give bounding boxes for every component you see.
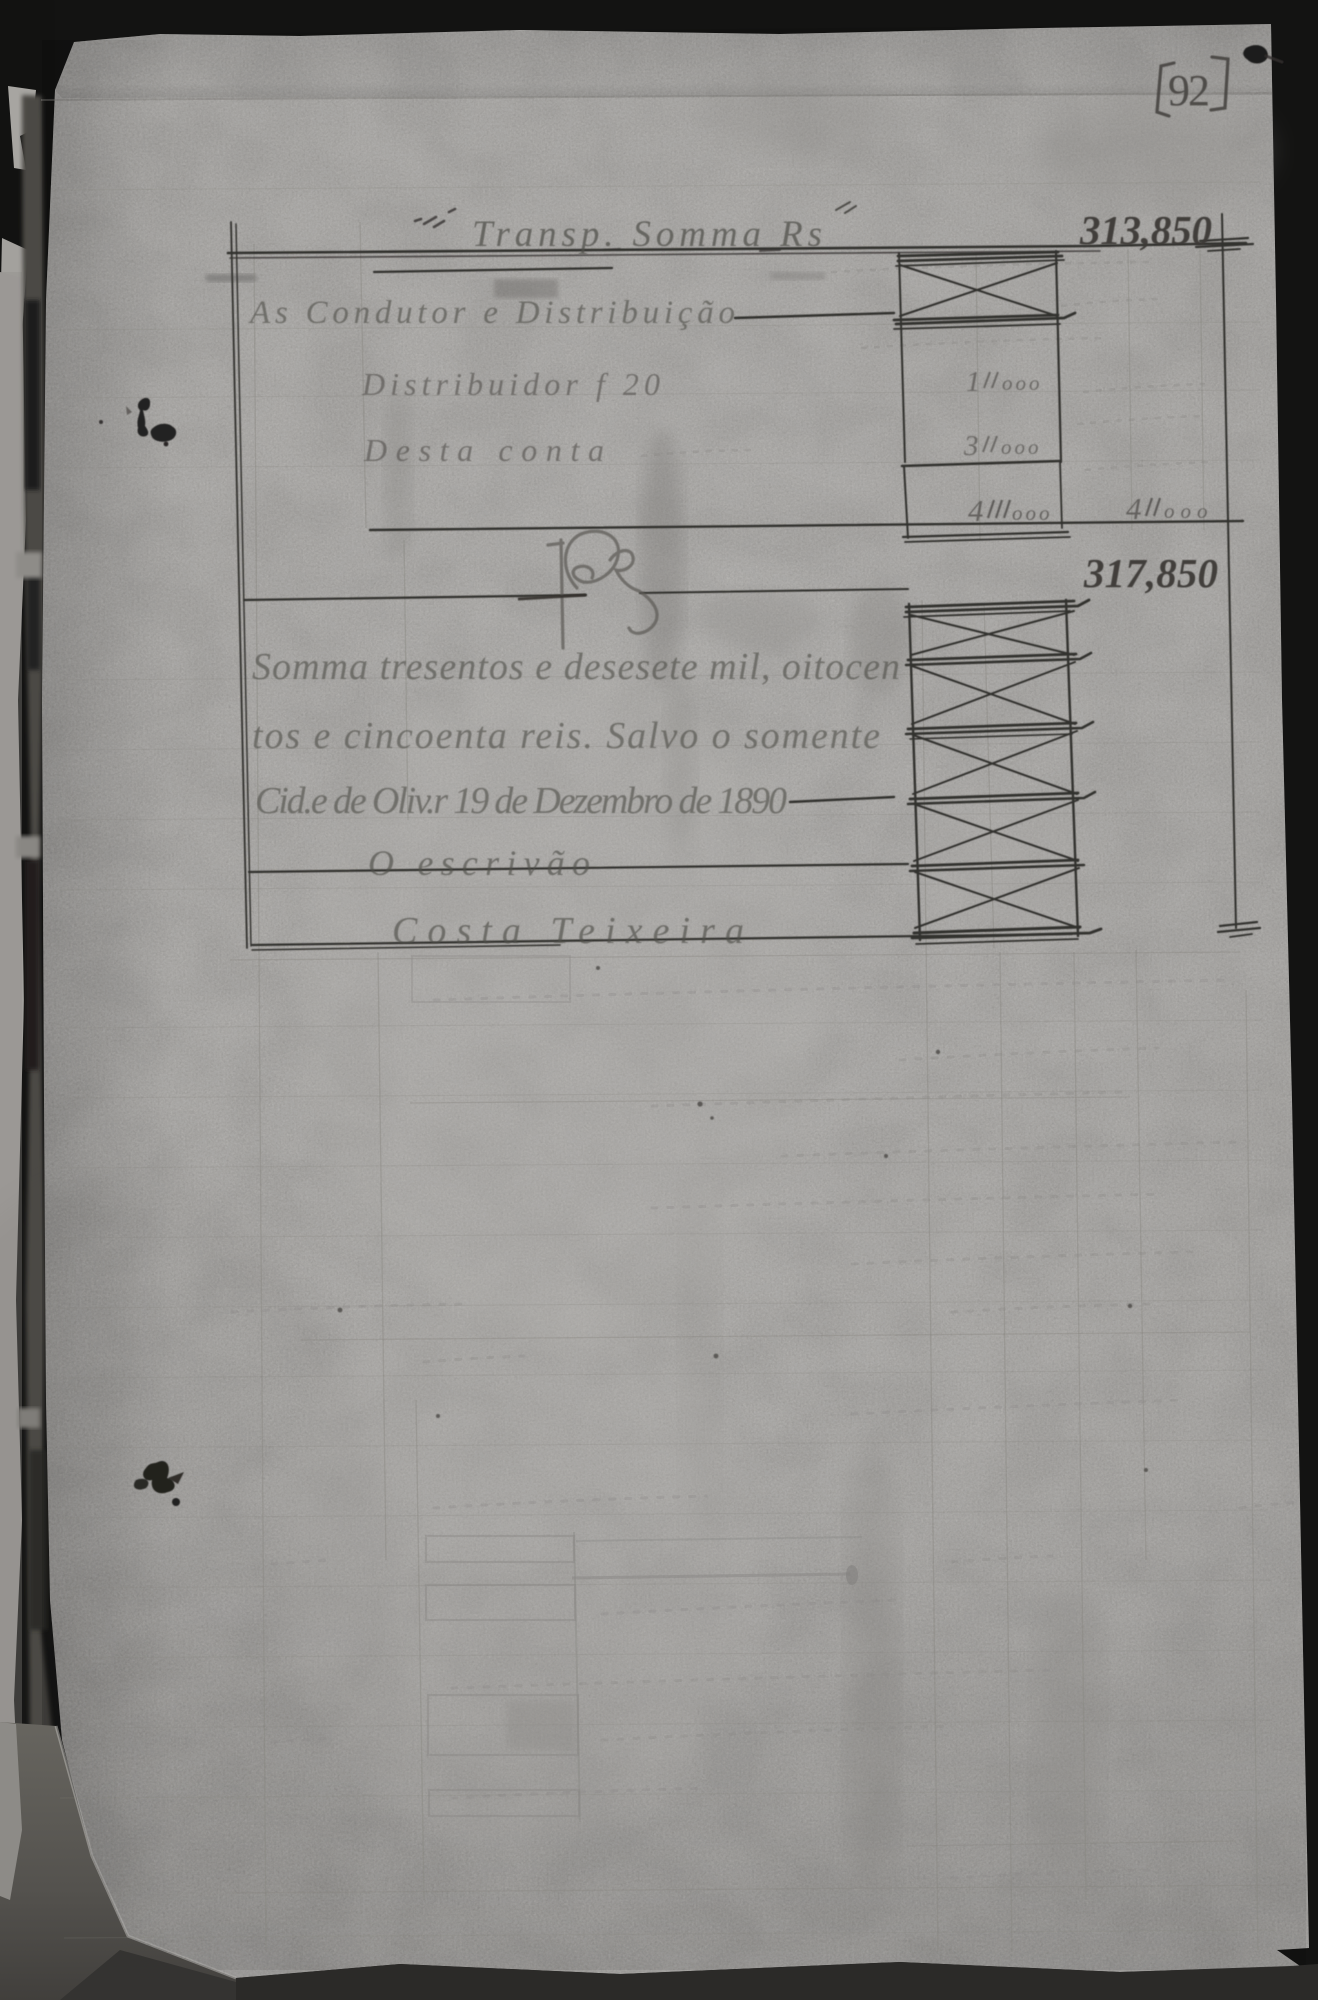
svg-text:ooo: ooo	[1001, 435, 1042, 459]
svg-text:4: 4	[968, 493, 984, 528]
svg-text:317,850: 317,850	[1083, 550, 1218, 596]
svg-text:313,850: 313,850	[1079, 207, 1212, 253]
svg-text:ooo: ooo	[1002, 371, 1043, 395]
svg-text:92: 92	[1168, 66, 1210, 115]
svg-text:ooo: ooo	[1012, 501, 1053, 525]
svg-text:1: 1	[966, 366, 981, 398]
svg-text:tos e cincoenta reis. Salvo o: tos e cincoenta reis. Salvo o somente	[252, 715, 880, 757]
svg-text:Somma tresentos e desesete mil: Somma tresentos e desesete mil, oitocen	[252, 646, 900, 688]
svg-text:4: 4	[1126, 491, 1142, 526]
svg-text:ooo: ooo	[1164, 499, 1214, 523]
svg-text:Distribuidor f 20: Distribuidor f 20	[361, 366, 660, 402]
svg-text:3: 3	[963, 430, 979, 462]
svg-text:Cid.e de Oliv.r 19 de Dezembro: Cid.e de Oliv.r 19 de Dezembro de 1890	[255, 780, 787, 822]
svg-text:Transp. Somma Rs: Transp. Somma Rs	[472, 214, 822, 255]
